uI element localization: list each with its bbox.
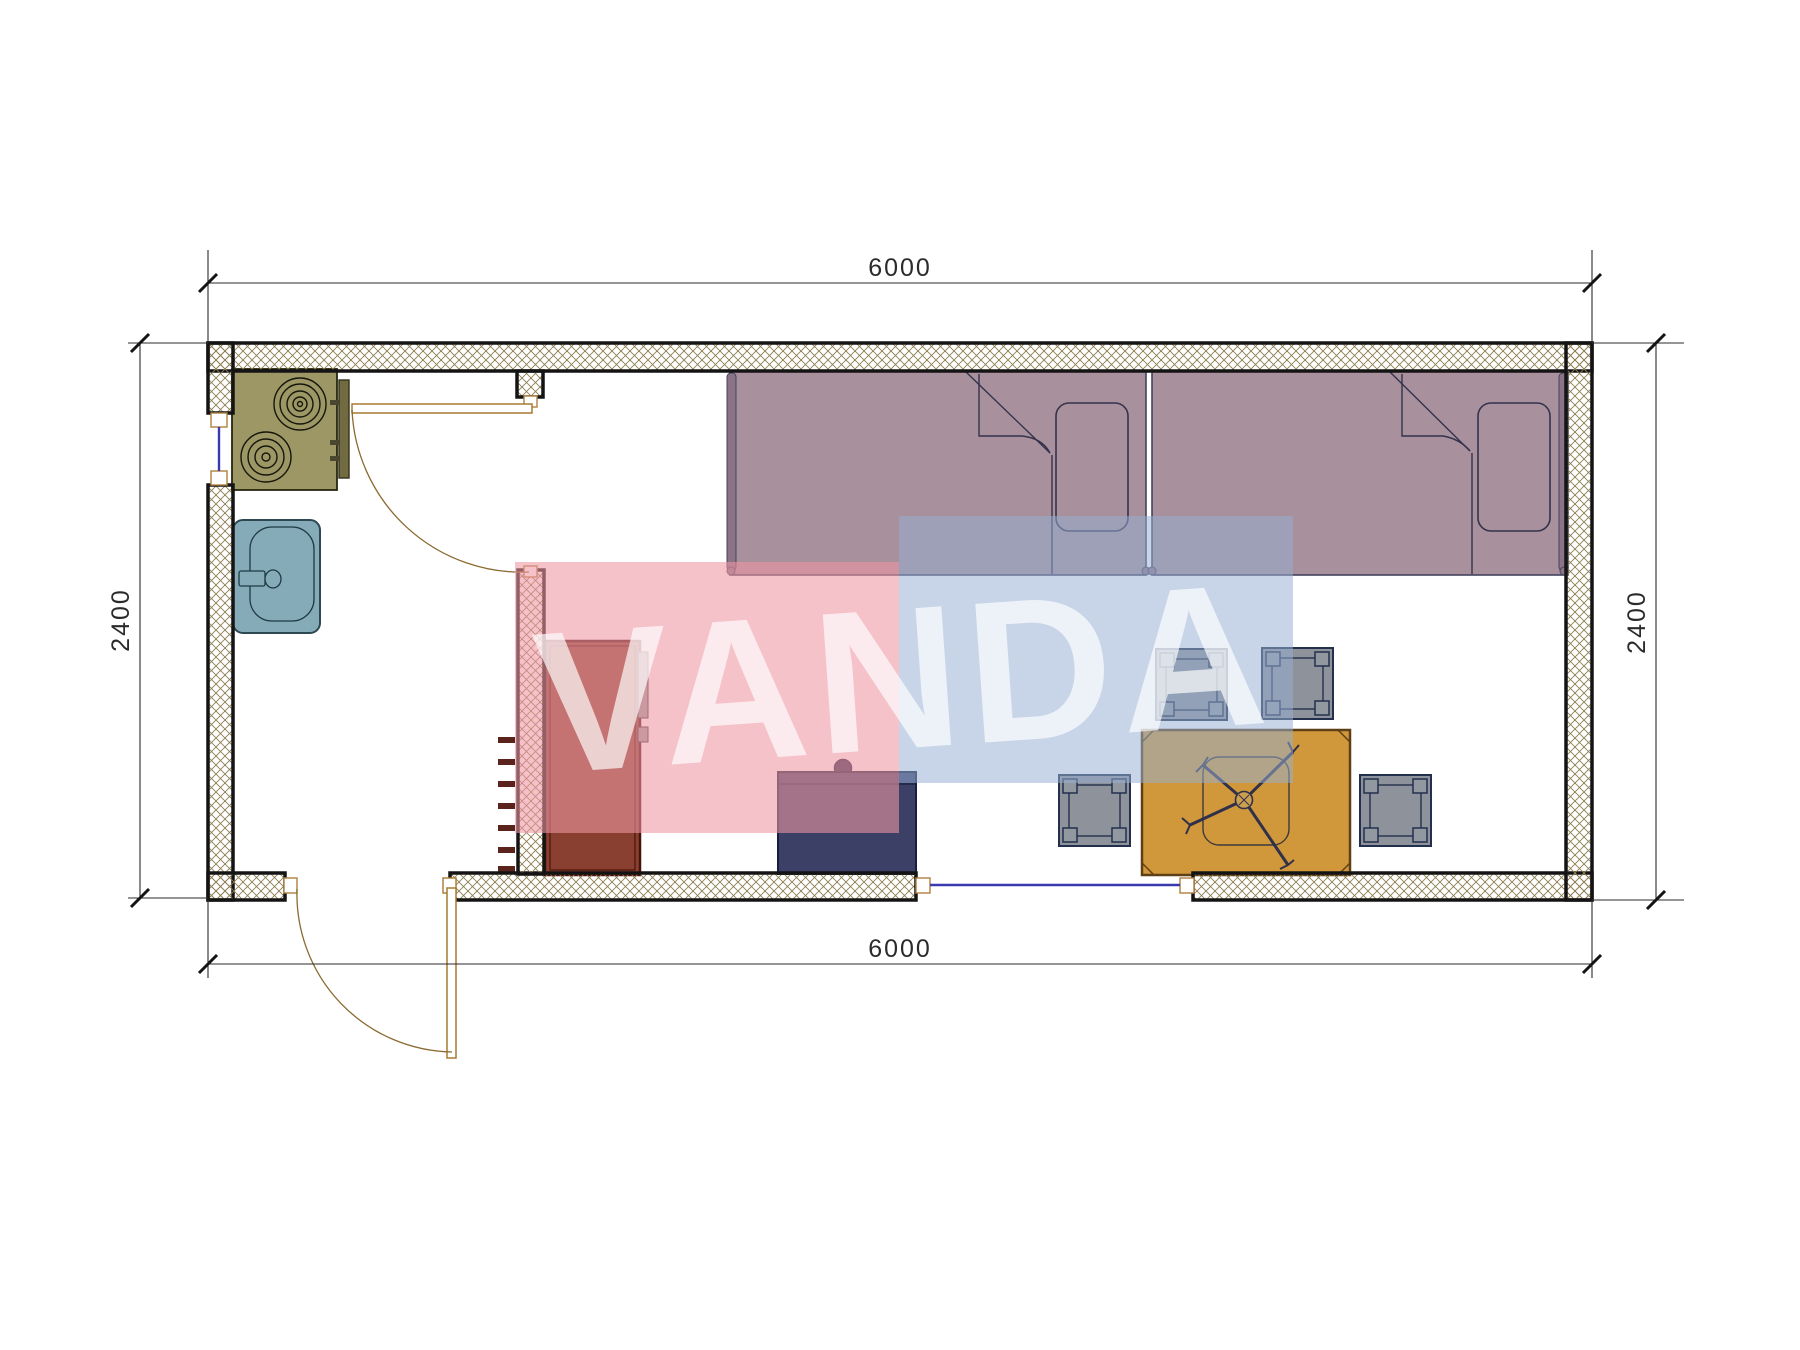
floor-plan-canvas: 6000 6000 2400 2400 VANDA <box>0 0 1800 1350</box>
dimension-label-right: 2400 <box>1623 590 1651 654</box>
window-icon <box>916 878 1194 893</box>
door-swing-icon <box>352 396 537 577</box>
dimension-label-left: 2400 <box>107 588 135 652</box>
floor-plan-drawing: 6000 6000 2400 2400 VANDA <box>0 0 1800 1350</box>
stool-icon <box>1059 775 1130 846</box>
wall-hooks <box>498 737 515 872</box>
window-icon <box>211 413 227 485</box>
stool-icon <box>1360 775 1431 846</box>
stove-icon <box>232 369 349 490</box>
dimension-label-top: 6000 <box>868 254 932 282</box>
dimension-label-bottom: 6000 <box>868 935 932 963</box>
sink-icon <box>233 520 320 633</box>
door-swing-icon <box>284 878 456 1058</box>
